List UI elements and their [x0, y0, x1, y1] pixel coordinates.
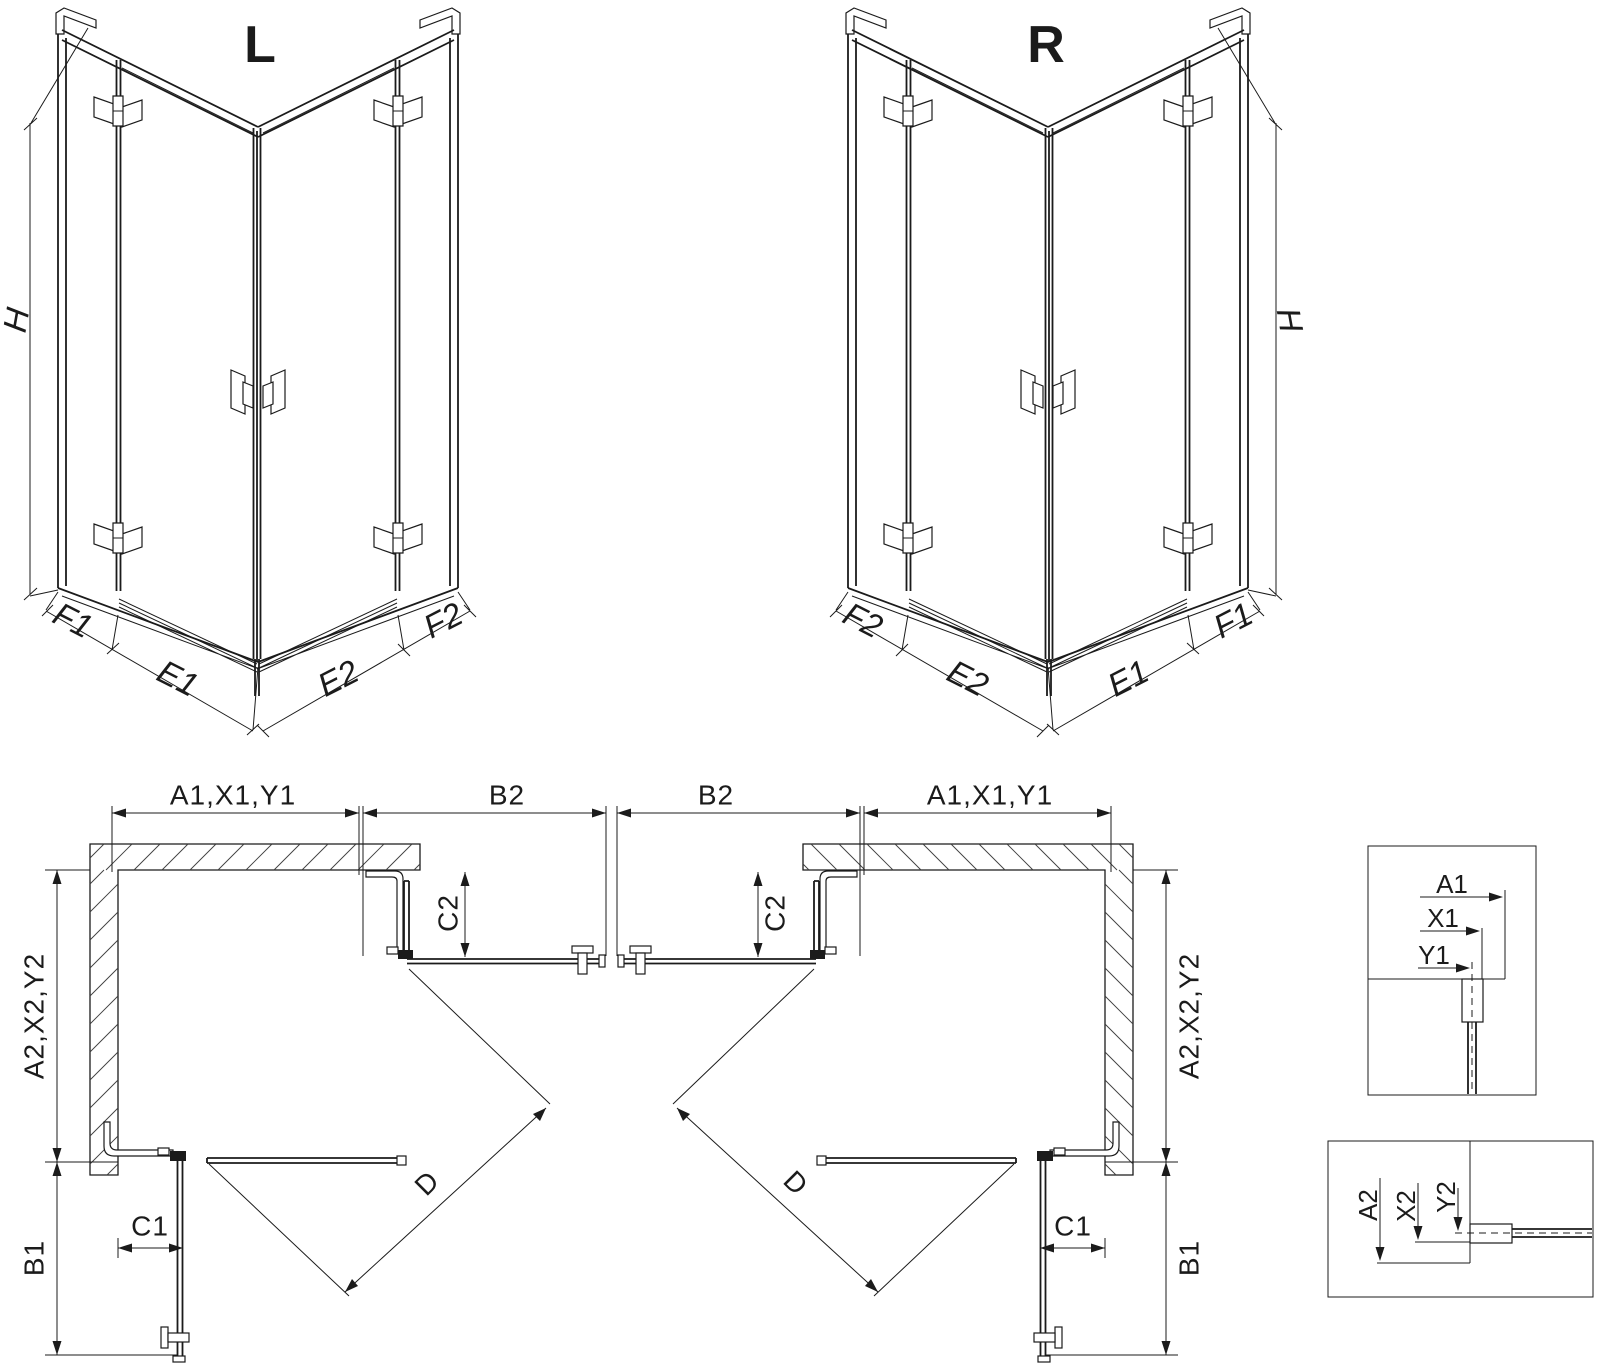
iso-left-dim-e2: E2: [312, 652, 365, 703]
plan-left-dim-a2: A2,X2,Y2: [19, 953, 50, 1079]
plan-left-dim-b2: B2: [489, 780, 525, 811]
detail-top-dim-y1: Y1: [1418, 940, 1450, 970]
iso-left-dim-h: H: [0, 305, 36, 335]
iso-left-dim-f2: F2: [417, 595, 468, 645]
plan-right-dim-a2: A2,X2,Y2: [1174, 953, 1205, 1079]
iso-right-dim-f2: F2: [837, 595, 888, 645]
plan-right-dim-b2: B2: [698, 780, 734, 811]
plan-left-dim-a1: A1,X1,Y1: [170, 780, 296, 811]
plan-view-left: [45, 806, 606, 1362]
plan-left-dim-c1: C1: [131, 1211, 169, 1242]
detail-bottom-dim-a2: A2: [1353, 1189, 1383, 1221]
plan-left-dim-c2: C2: [433, 894, 464, 932]
plan-right-dim-a1: A1,X1,Y1: [927, 780, 1053, 811]
plan-right-dim-d: D: [778, 1165, 815, 1202]
plan-left-dim-b1: B1: [19, 1240, 50, 1276]
plan-left-dim-d: D: [409, 1165, 446, 1202]
iso-right-dim-e1: E1: [1102, 652, 1155, 703]
plan-right-dim-c1: C1: [1054, 1211, 1092, 1242]
iso-right-dim-e2: E2: [942, 652, 995, 703]
detail-top-dim-x1: X1: [1427, 903, 1459, 933]
iso-left-title: L: [244, 16, 276, 74]
iso-right-dim-f1: F1: [1207, 595, 1258, 645]
iso-left-dim-e1: E1: [152, 652, 205, 703]
iso-right-title: R: [1027, 16, 1065, 74]
detail-bottom-dim-x2: X2: [1391, 1190, 1421, 1222]
detail-bottom-dim-y2: Y2: [1431, 1181, 1461, 1213]
plan-view-right: [617, 806, 1178, 1362]
iso-left-dim-f1: F1: [47, 595, 98, 645]
technical-drawing-sheet: L H F1 E1 E2 F2 R H F2 E2 E1 F1 A1,X1,Y1…: [0, 0, 1600, 1366]
detail-top-dim-a1: A1: [1436, 869, 1468, 899]
plan-right-dim-b1: B1: [1174, 1240, 1205, 1276]
iso-view-left: [24, 8, 476, 737]
plan-right-dim-c2: C2: [760, 894, 791, 932]
shower-enclosure-diagram: L H F1 E1 E2 F2 R H F2 E2 E1 F1 A1,X1,Y1…: [0, 0, 1600, 1366]
iso-right-dim-h: H: [1270, 305, 1311, 335]
